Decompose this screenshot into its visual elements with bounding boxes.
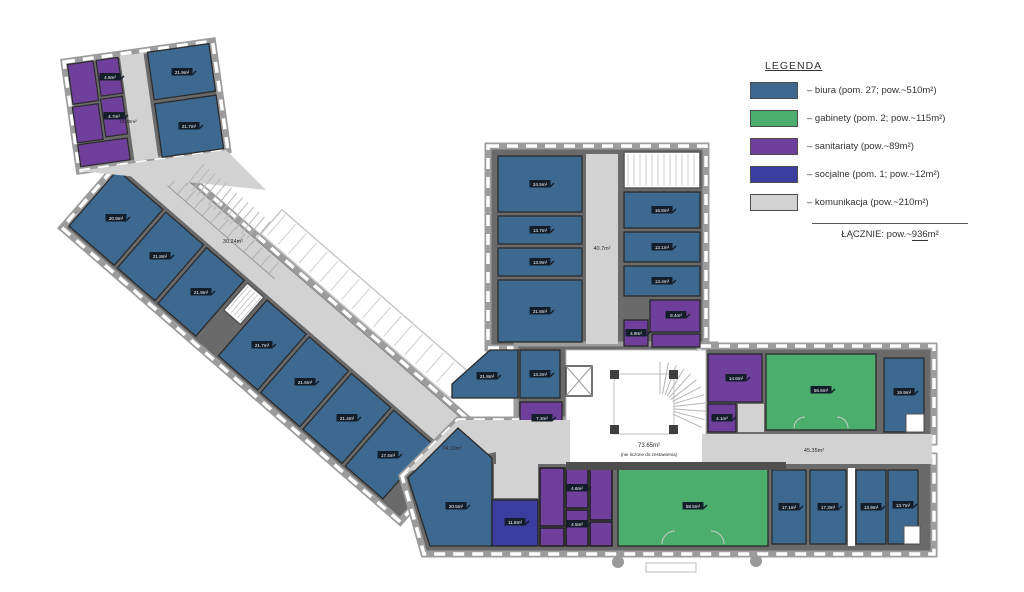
pillar [669, 425, 678, 434]
legend-swatch-komunikacja [750, 194, 798, 211]
legend-total: ŁĄCZNIE: pow.~936m² [812, 223, 968, 240]
sanitary-room [72, 104, 103, 143]
top-left-block [64, 41, 228, 171]
room-area-badge: 58.5m² [683, 502, 708, 510]
area-label: 15.35m² [119, 119, 137, 125]
room-area-badge: 13.9m² [530, 258, 555, 266]
badge-text: 21.8m² [153, 254, 168, 259]
corridor-bit [738, 404, 764, 432]
room-area-badge: 19.9m² [894, 388, 919, 396]
room-area-badge: 24.5m² [530, 180, 555, 188]
area-label: 74.10m² [442, 446, 462, 452]
entry-steps [646, 563, 696, 572]
badge-text: 20.5m² [449, 504, 464, 509]
sanitary-room [590, 468, 612, 520]
room-area-badge: 4.6m² [567, 484, 592, 492]
room-area-badge: 13.2m² [530, 370, 555, 378]
legend-label-komunikacja: – komunikacja (pow.~210m²) [807, 197, 929, 208]
room-area-badge: 21.9m² [191, 288, 216, 296]
room-area-badge: 13.9m² [861, 503, 886, 511]
badge-text: 56.6m² [814, 388, 829, 393]
column [612, 556, 624, 568]
room-area-badge: 20.5m² [446, 502, 471, 510]
area-label: (nie liczone do zestawienia) [621, 452, 678, 457]
badge-text: 21.7m² [255, 343, 270, 348]
room-area-badge: 17.3m² [818, 503, 843, 511]
room-area-badge: 13.1m² [652, 243, 677, 251]
badge-text: 13.9m² [533, 260, 548, 265]
legend-label-biura: – biura (pom. 27; pow.~510m²) [807, 85, 937, 96]
legend-label-sanitariaty: – sanitariaty (pow.~89m²) [807, 141, 914, 152]
badge-text: 21.4m² [340, 416, 355, 421]
sanitary-room [590, 522, 612, 546]
room-notch [906, 414, 924, 432]
badge-text: 13.7m² [533, 228, 548, 233]
legend-swatch-socjalne [750, 166, 798, 183]
legend-label-socjalne: – socjalne (pom. 1; pow.~12m²) [807, 169, 940, 180]
room-area-badge: 21.8m² [530, 307, 555, 315]
badge-text: 17.1m² [782, 505, 797, 510]
room-area-badge: 4.1m² [712, 414, 737, 422]
badge-text: 13.9m² [864, 505, 879, 510]
south-wall [566, 462, 786, 470]
room-area-badge: 56.6m² [811, 386, 836, 394]
passage-gap [848, 468, 855, 546]
area-label: 30.24m² [223, 239, 243, 245]
badge-text: 19.9m² [897, 390, 912, 395]
badge-text: 13.1m² [655, 245, 670, 250]
badge-text: 24.5m² [533, 182, 548, 187]
sanitary-room [652, 334, 700, 347]
sanitary-room [67, 61, 98, 104]
badge-text: 58.5m² [686, 504, 701, 509]
room-area-badge: 4.5m² [567, 520, 592, 528]
badge-text: 4.7m² [108, 114, 120, 119]
badge-text: 9.4m² [670, 313, 682, 318]
badge-text: 13.2m² [533, 372, 548, 377]
room-area-badge: 21.8m² [150, 252, 175, 260]
badge-text: 4.5m² [571, 522, 583, 527]
room-notch [904, 526, 920, 544]
corridor-stub [494, 464, 538, 498]
legend-total-suffix: m² [928, 229, 939, 240]
room-area-badge: 4.6m² [100, 73, 125, 81]
room-area-badge: 13.7m² [530, 226, 555, 234]
room-area-badge: 21.9m² [172, 68, 197, 76]
badge-text: 20.9m² [109, 216, 124, 221]
sanitary-room [540, 468, 564, 526]
room-area-badge: 4.7m² [104, 112, 129, 120]
legend-rows: – biura (pom. 27; pow.~510m²)– gabinety … [750, 82, 968, 211]
badge-text: 11.8m² [508, 520, 522, 525]
legend-total-value: 936 [912, 229, 928, 241]
legend-item-gabinety: – gabinety (pom. 2; pow.~115m²) [750, 110, 968, 127]
badge-text: 21.8m² [480, 374, 495, 379]
room-area-badge: 16.8m² [652, 206, 677, 214]
room-area-badge: 17.1m² [779, 503, 804, 511]
room-area-badge: 7.3m² [532, 414, 557, 422]
sanitary-room [540, 528, 564, 546]
legend-swatch-gabinety [750, 110, 798, 127]
badge-text: 17.3m² [821, 505, 836, 510]
area-label: 40.7m² [593, 246, 610, 252]
room-area-badge: 13.4m² [652, 277, 677, 285]
badge-text: 21.9m² [175, 70, 190, 75]
legend-swatch-sanitariaty [750, 138, 798, 155]
badge-text: 14.6m² [729, 376, 744, 381]
badge-text: 4.6m² [104, 75, 116, 80]
badge-text: 17.4m² [381, 453, 396, 458]
badge-text: 4.1m² [716, 416, 728, 421]
room-area-badge: 21.7m² [179, 122, 204, 130]
room-area-badge: 14.6m² [726, 374, 751, 382]
area-label: 73.65m² [638, 443, 660, 449]
pillar [610, 425, 619, 434]
badge-text: 21.9m² [194, 290, 209, 295]
badge-text: 13.4m² [655, 279, 670, 284]
column [750, 555, 762, 567]
legend: LEGENDA – biura (pom. 27; pow.~510m²)– g… [750, 60, 968, 240]
area-label: 45.35m² [804, 448, 824, 454]
room-area-badge: 21.4m² [337, 414, 362, 422]
legend-title: LEGENDA [765, 60, 968, 72]
legend-label-gabinety: – gabinety (pom. 2; pow.~115m²) [807, 113, 945, 124]
legend-swatch-biura [750, 82, 798, 99]
sanitary-room [566, 510, 588, 546]
badge-text: 16.8m² [655, 208, 670, 213]
legend-item-socjalne: – socjalne (pom. 1; pow.~12m²) [750, 166, 968, 183]
badge-text: 7.3m² [536, 416, 548, 421]
room-area-badge: 21.6m² [295, 378, 320, 386]
pillar [610, 370, 619, 379]
legend-item-biura: – biura (pom. 27; pow.~510m²) [750, 82, 968, 99]
room-area-badge: 9.4m² [666, 311, 691, 319]
floor-plan-page: 15.35m²30.24m²74.10m²40.7m²45.35m²73.65m… [0, 0, 1024, 592]
stairwell [624, 152, 700, 188]
badge-text: 21.8m² [533, 309, 548, 314]
badge-text: 21.7m² [182, 124, 197, 129]
legend-item-sanitariaty: – sanitariaty (pow.~89m²) [750, 138, 968, 155]
legend-total-prefix: ŁĄCZNIE: pow.~ [841, 229, 912, 240]
room-area-badge: 21.8m² [477, 372, 502, 380]
room-area-badge: 21.7m² [252, 341, 277, 349]
room-area-badge: 4.9m² [626, 329, 651, 337]
badge-text: 21.6m² [298, 380, 313, 385]
room-area-badge: 20.9m² [106, 214, 131, 222]
room-area-badge: 13.7m² [893, 501, 918, 509]
badge-text: 4.6m² [571, 486, 583, 491]
pillar [669, 370, 678, 379]
badge-text: 13.7m² [896, 503, 911, 508]
room-area-badge: 17.4m² [378, 451, 403, 459]
badge-text: 4.9m² [630, 331, 642, 336]
room-area-badge: 11.8m² [505, 518, 530, 526]
legend-item-komunikacja: – komunikacja (pow.~210m²) [750, 194, 968, 211]
